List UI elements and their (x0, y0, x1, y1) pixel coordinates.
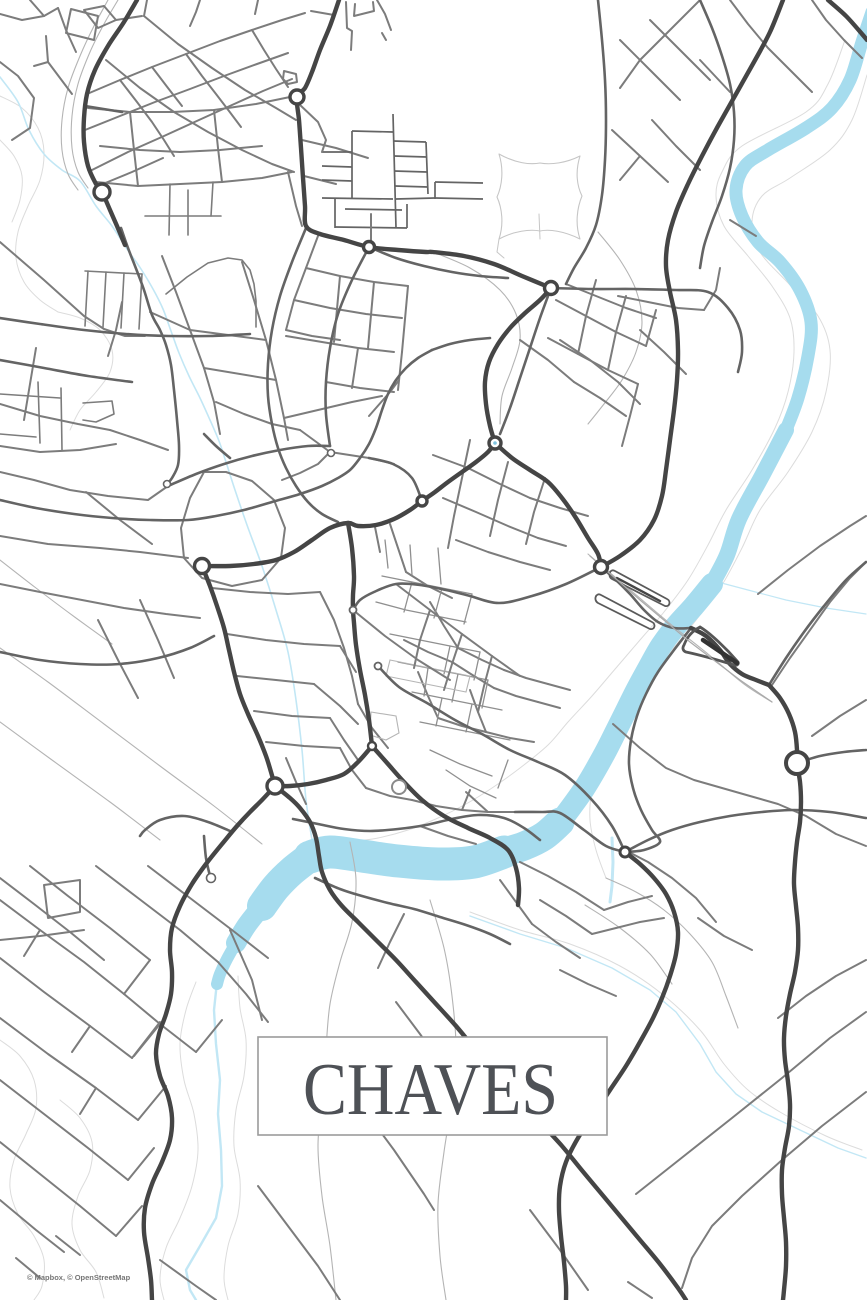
svg-text:© Mapbox, © OpenStreetMap: © Mapbox, © OpenStreetMap (27, 1273, 131, 1282)
svg-text:CHAVES: CHAVES (303, 1049, 558, 1131)
